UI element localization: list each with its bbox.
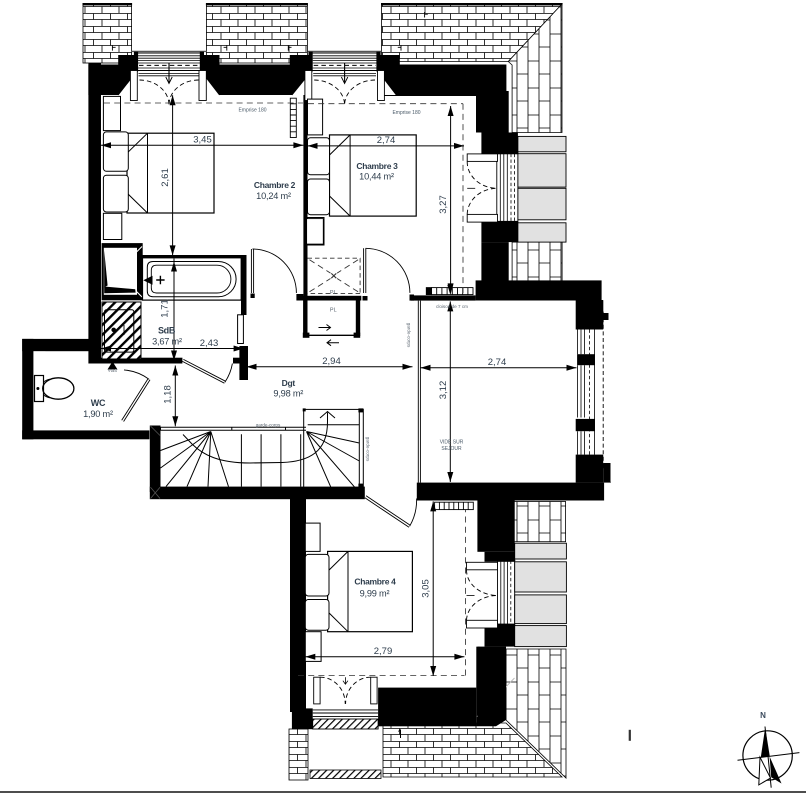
svg-text:10,44 m²: 10,44 m² (359, 172, 394, 182)
svg-text:3,45: 3,45 (193, 135, 212, 146)
svg-text:Dgt: Dgt (282, 378, 296, 388)
svg-text:SdB: SdB (158, 326, 176, 336)
svg-text:3,05: 3,05 (421, 579, 432, 598)
svg-text:VIDE SUR: VIDE SUR (440, 440, 464, 446)
svg-text:SRA: SRA (107, 368, 117, 373)
svg-text:2,74: 2,74 (377, 135, 396, 146)
svg-text:3,67 m²: 3,67 m² (152, 337, 182, 347)
svg-text:Chambre 3: Chambre 3 (356, 161, 398, 171)
svg-text:2,79: 2,79 (374, 646, 393, 657)
svg-text:9,98 m²: 9,98 m² (273, 389, 303, 399)
svg-text:2,94: 2,94 (322, 356, 341, 367)
svg-text:N: N (760, 711, 766, 720)
svg-text:1,71: 1,71 (160, 299, 171, 318)
svg-text:Chambre 4: Chambre 4 (354, 577, 396, 587)
svg-text:2,43: 2,43 (200, 338, 219, 349)
svg-text:10,24 m²: 10,24 m² (256, 191, 291, 201)
svg-text:2,61: 2,61 (160, 168, 171, 187)
svg-text:WC: WC (91, 398, 106, 408)
svg-text:3,12: 3,12 (438, 381, 449, 400)
svg-text:1,90 m²: 1,90 m² (83, 409, 113, 419)
svg-text:1,18: 1,18 (163, 385, 174, 404)
svg-text:2,74: 2,74 (488, 357, 507, 368)
svg-text:garde-corps: garde-corps (256, 422, 281, 427)
svg-text:SEJOUR: SEJOUR (441, 446, 462, 452)
svg-text:Chambre 2: Chambre 2 (254, 180, 296, 190)
svg-text:garde-corps: garde-corps (366, 437, 371, 462)
svg-text:Emprise 180: Emprise 180 (392, 110, 420, 116)
svg-text:Emprise 180: Emprise 180 (238, 108, 266, 114)
svg-text:PL: PL (330, 308, 337, 314)
svg-text:3,27: 3,27 (438, 195, 449, 214)
svg-text:garde-corps: garde-corps (407, 323, 412, 348)
svg-text:cloison de 7 cm: cloison de 7 cm (436, 304, 468, 309)
svg-text:PL: PL (330, 290, 337, 296)
svg-text:9,99 m²: 9,99 m² (360, 589, 390, 599)
